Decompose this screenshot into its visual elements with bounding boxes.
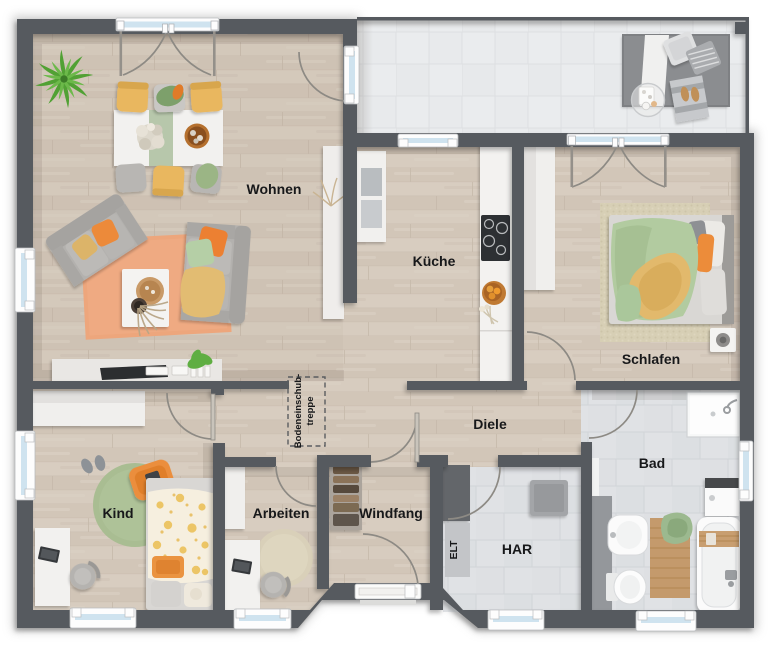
svg-text:Kind: Kind [102,505,133,521]
svg-text:HAR: HAR [502,541,532,557]
svg-text:Wohnen: Wohnen [247,181,302,197]
svg-text:Bodeneinschub-: Bodeneinschub- [293,374,304,448]
svg-text:Windfang: Windfang [359,505,423,521]
svg-text:ELT: ELT [448,540,460,560]
svg-text:Küche: Küche [413,253,456,269]
svg-text:Bad: Bad [639,455,665,471]
svg-text:Schlafen: Schlafen [622,351,680,367]
svg-text:Arbeiten: Arbeiten [253,505,310,521]
svg-text:treppe: treppe [305,396,316,425]
svg-text:Diele: Diele [473,416,507,432]
